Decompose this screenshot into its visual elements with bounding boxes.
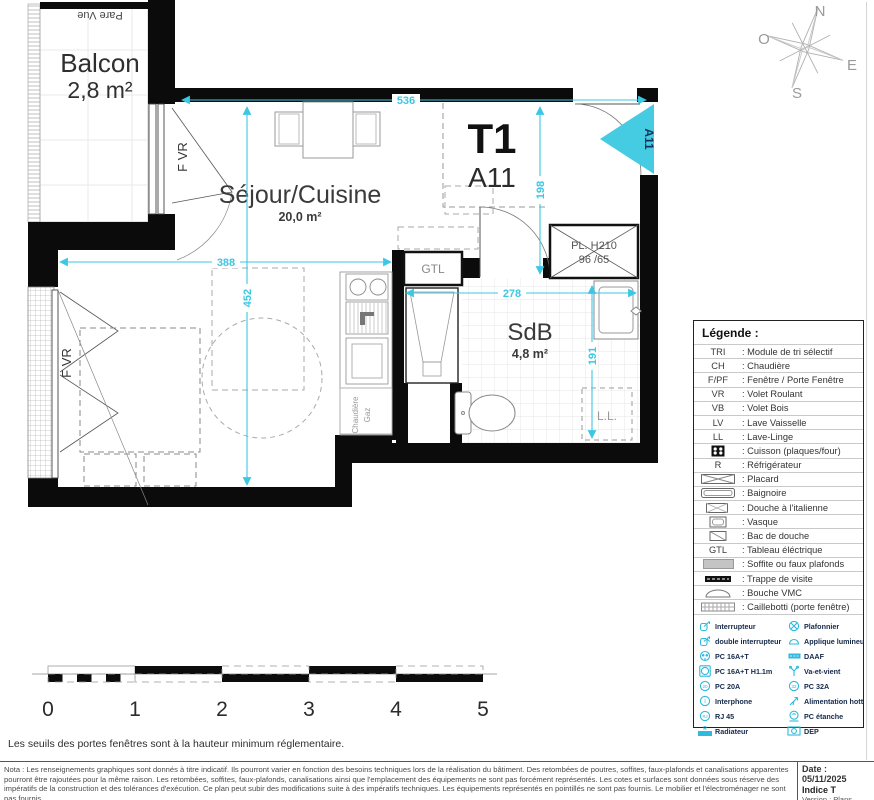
legend-label: : Placard: [742, 474, 779, 484]
legend-electrical-label: Radiateur: [715, 727, 748, 736]
legend-key: LL: [694, 432, 742, 442]
date-label: Date : 05/11/2025: [802, 764, 874, 784]
legend-electrical-item: DEP: [787, 724, 863, 739]
scale-tick: 5: [477, 698, 489, 721]
legend-electrical-label: RJ 45: [715, 712, 734, 721]
pc20-icon: 20: [698, 680, 712, 692]
bed: [80, 328, 200, 486]
legend-electrical-label: DAAF: [804, 652, 824, 661]
placard: PL. H210 96 /65: [550, 225, 638, 278]
unit-id: A11: [468, 162, 516, 193]
gtl-label: GTL: [421, 262, 445, 276]
legend-electrical-label: Interrupteur: [715, 622, 756, 631]
caillebotis: [28, 287, 54, 478]
boiler-label-2: Gaz: [363, 408, 372, 423]
legend-electrical-item: Interrupteur: [698, 619, 786, 634]
sheet-edge-line: [866, 2, 867, 760]
shower: [406, 288, 458, 383]
legend-label: : Douche à l'italienne: [742, 503, 828, 513]
placard-icon: [694, 473, 742, 485]
vasque-icon: [694, 516, 742, 528]
trappe-icon: [694, 573, 742, 585]
placard-line2: 96 /65: [579, 254, 610, 266]
svg-text:20: 20: [702, 684, 708, 689]
scale-ticks: 012345: [42, 698, 489, 721]
legend-row: : Trappe de visite: [694, 571, 863, 585]
legend-electrical-label: PC 16A+T H1.1m: [715, 667, 772, 676]
compass-n: N: [815, 3, 826, 20]
dashed-worktop: [398, 227, 478, 249]
legend-key: CH: [694, 361, 742, 371]
legend-electrical-item: Va-et-vient: [787, 664, 863, 679]
bac-douche-icon: [694, 530, 742, 542]
radiateur-icon: R: [698, 725, 712, 737]
legend-electrical-label: Interphone: [715, 697, 752, 706]
dining-table: [275, 102, 380, 158]
legend-label: : Réfrigérateur: [742, 460, 801, 470]
legend-key: VB: [694, 403, 742, 413]
balcony-name: Balcon: [60, 48, 140, 78]
legend-label: : Baignoire: [742, 488, 786, 498]
scale-tick: 3: [303, 698, 315, 721]
bathroom-area: 4,8 m²: [512, 347, 548, 361]
floor-plan-sheet: Pare Vue Balcon 2,8 m² F VR: [0, 0, 874, 800]
legend-electrical-item: RRadiateur: [698, 724, 786, 739]
hotte-icon: [787, 695, 801, 707]
placard-line1: PL. H210: [571, 240, 617, 252]
cuisson-icon: [694, 445, 742, 457]
legend-label: : Cuisson (plaques/four): [742, 446, 841, 456]
dim-top: 536: [397, 95, 415, 107]
pc32-icon: 32: [787, 680, 801, 692]
legend-label: : Lave-Linge: [742, 432, 793, 442]
pare-vue-label: Pare Vue: [77, 9, 122, 21]
legend-row: GTL: Tableau éléctrique: [694, 543, 863, 557]
legend-row: LV: Lave Vaisselle: [694, 415, 863, 429]
legend-electrical-item: DAAF: [787, 649, 863, 664]
scale-tick: 2: [216, 698, 228, 721]
entrance-tag: A11: [642, 128, 656, 150]
boiler-label-1: Chaudière: [351, 396, 360, 433]
legend-label: : Lave Vaisselle: [742, 418, 806, 428]
unit-type: T1: [467, 115, 516, 162]
compass-o: O: [758, 31, 770, 48]
legend-row: : Cuisson (plaques/four): [694, 443, 863, 457]
pc16-icon: [698, 650, 712, 662]
vasque: [594, 281, 641, 339]
double-switch-icon: [698, 635, 712, 647]
legend-row: : Placard: [694, 472, 863, 486]
legend-electrical-item: double interrupteur: [698, 634, 786, 649]
legend-rows: TRI: Module de tri sélectifCH: Chaudière…: [694, 344, 863, 614]
scale-tick: 4: [390, 698, 402, 721]
threshold-note: Les seuils des portes fenêtres sont à la…: [8, 738, 344, 750]
legend-label: : Chaudière: [742, 361, 790, 371]
legend-electrical-item: Plafonnier: [787, 619, 863, 634]
legend-label: : Bac de douche: [742, 531, 809, 541]
balcony: Pare Vue Balcon 2,8 m²: [28, 4, 148, 222]
plafonnier-icon: [787, 620, 801, 632]
dim-living-w: 388: [217, 257, 235, 269]
legend-electrical-item: PC 16A+T H1.1m: [698, 664, 786, 679]
indice-label: Indice T: [802, 785, 874, 795]
dim-hall-h: 198: [535, 181, 547, 199]
legend-label: : Vasque: [742, 517, 778, 527]
strip-divider: [0, 761, 874, 762]
svg-text:32: 32: [791, 684, 797, 689]
compass-e: E: [847, 57, 857, 74]
bedroom-window: [52, 290, 148, 505]
gtl-box: GTL: [404, 252, 462, 285]
living-area: 20,0 m²: [278, 210, 321, 224]
scale-tick: 1: [129, 698, 141, 721]
legend-label: : Tableau éléctrique: [742, 545, 822, 555]
legend-label: : Caillebotti (porte fenêtre): [742, 602, 849, 612]
baignoire-icon: [694, 487, 742, 499]
dim-bath-h: 191: [587, 347, 599, 365]
interphone-icon: I: [698, 695, 712, 707]
legend-electrical-label: Plafonnier: [804, 622, 839, 631]
legend-electrical-label: PC 32A: [804, 682, 829, 691]
legend-electrical-label: Va-et-vient: [804, 667, 840, 676]
legend-row: : Baignoire: [694, 486, 863, 500]
entrance-marker: A11: [600, 104, 656, 174]
compass: N O E S: [754, 0, 857, 102]
soffite-icon: [694, 558, 742, 570]
legend-electrical-label: Applique lumineuse: [804, 637, 863, 646]
dep-icon: [787, 725, 801, 737]
legend-row: VB: Volet Bois: [694, 401, 863, 415]
living-name: Séjour/Cuisine: [219, 181, 382, 209]
legend-key: LV: [694, 418, 742, 428]
nota-text: Nota : Les renseignements graphiques son…: [4, 765, 790, 800]
legend-electrical-label: double interrupteur: [715, 637, 781, 646]
legend-label: : Soffite ou faux plafonds: [742, 559, 844, 569]
legend-row: R: Réfrigérateur: [694, 458, 863, 472]
legend-electrical-label: DEP: [804, 727, 819, 736]
bathroom-name: SdB: [507, 319, 552, 346]
legend-key: GTL: [694, 545, 742, 555]
pare-vue-screen: [28, 4, 40, 222]
washer-label: L.L.: [597, 409, 617, 423]
legend-electrical-label: PC étanche: [804, 712, 843, 721]
dim-bath-w: 278: [503, 288, 521, 300]
legend-label: : Fenêtre / Porte Fenêtre: [742, 375, 844, 385]
daaf-icon: [787, 650, 801, 662]
toilet: [455, 392, 515, 434]
title-block: Date : 05/11/2025 Indice T Version : Pla…: [797, 761, 874, 800]
cooktop: [346, 274, 388, 300]
switch-icon: [698, 620, 712, 632]
legend-row: : Caillebotti (porte fenêtre): [694, 599, 863, 613]
douche-italienne-icon: [694, 502, 742, 514]
legend-row: : Bac de douche: [694, 528, 863, 542]
scale-tick: 0: [42, 698, 54, 721]
bedroom-window-label: F VR: [59, 348, 74, 378]
legend-key: F/PF: [694, 375, 742, 385]
svg-text:I: I: [704, 699, 706, 705]
legend-electrical-label: Alimentation hotte: [804, 697, 863, 706]
legend-key: R: [694, 460, 742, 470]
legend-row: : Vasque: [694, 514, 863, 528]
legend-electrical-label: PC 20A: [715, 682, 740, 691]
legend-label: : Trappe de visite: [742, 574, 813, 584]
legend-row: : Bouche VMC: [694, 585, 863, 599]
version-label-1: Version : Plans: [802, 795, 874, 800]
legend-label: : Module de tri sélectif: [742, 347, 832, 357]
balcony-window-label: F VR: [175, 142, 190, 172]
dim-living-h: 452: [242, 289, 254, 307]
legend-row: : Douche à l'italienne: [694, 500, 863, 514]
legend-key: TRI: [694, 347, 742, 357]
applique-icon: [787, 635, 801, 647]
legend-title: Légende :: [694, 321, 863, 344]
legend-label: : Volet Bois: [742, 403, 789, 413]
legend-row: LL: Lave-Linge: [694, 429, 863, 443]
legend-row: F/PF: Fenêtre / Porte Fenêtre: [694, 372, 863, 386]
svg-text:RJ: RJ: [702, 714, 707, 719]
legend-electrical-item: RJRJ 45: [698, 709, 786, 724]
compass-s: S: [792, 85, 802, 102]
legend-row: VR: Volet Roulant: [694, 387, 863, 401]
legend-electrical-item: 32PC 32A: [787, 679, 863, 694]
legend-panel: Légende : TRI: Module de tri sélectifCH:…: [693, 320, 864, 728]
legend-electrical-item: PC étanche: [787, 709, 863, 724]
vaetvient-icon: [787, 665, 801, 677]
caillebotti-icon: [694, 601, 742, 613]
legend-key: VR: [694, 389, 742, 399]
legend-electrical-label: PC 16A+T: [715, 652, 749, 661]
legend-row: : Soffite ou faux plafonds: [694, 557, 863, 571]
legend-electrical-item: 20PC 20A: [698, 679, 786, 694]
legend-row: CH: Chaudière: [694, 358, 863, 372]
legend-electrical-item: IInterphone: [698, 694, 786, 709]
dashed-furniture: [212, 268, 304, 390]
scale-bar: 012345: [32, 666, 497, 721]
legend-electrical-item: PC 16A+T: [698, 649, 786, 664]
legend-electrical: InterrupteurPlafonnierdouble interrupteu…: [694, 614, 863, 739]
legend-label: : Volet Roulant: [742, 389, 802, 399]
pc16h-icon: [698, 665, 712, 677]
legend-electrical-item: Applique lumineuse: [787, 634, 863, 649]
balcony-area: 2,8 m²: [67, 77, 133, 103]
pc-etanche-icon: [787, 710, 801, 722]
legend-electrical-item: Alimentation hotte: [787, 694, 863, 709]
legend-row: TRI: Module de tri sélectif: [694, 344, 863, 358]
vmc-icon: [694, 587, 742, 599]
legend-label: : Bouche VMC: [742, 588, 802, 598]
rj45-icon: RJ: [698, 710, 712, 722]
